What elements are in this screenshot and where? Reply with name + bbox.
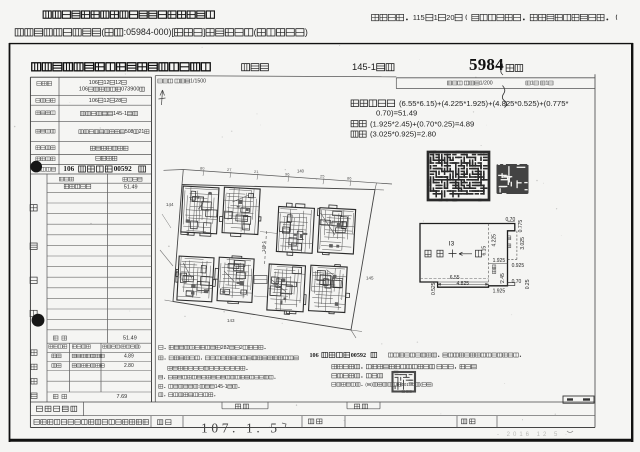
svg-text:4.825: 4.825 bbox=[457, 281, 470, 287]
svg-text:4.225: 4.225 bbox=[492, 234, 498, 247]
svg-text:20: 20 bbox=[446, 13, 454, 22]
svg-text:106: 106 bbox=[310, 353, 319, 359]
svg-text::05984-000)[: :05984-000)[ bbox=[124, 27, 175, 37]
svg-text:(3.025*0.925)=2.80: (3.025*0.925)=2.80 bbox=[370, 130, 436, 139]
svg-text:I3: I3 bbox=[449, 241, 455, 248]
svg-text:4.89: 4.89 bbox=[124, 353, 134, 359]
svg-text:00592: 00592 bbox=[114, 165, 132, 173]
svg-text:7.69: 7.69 bbox=[117, 394, 128, 400]
svg-text:1: 1 bbox=[434, 13, 438, 22]
svg-text:(: ( bbox=[101, 27, 104, 37]
svg-text:12: 12 bbox=[103, 80, 109, 86]
svg-text:51.49: 51.49 bbox=[123, 336, 137, 342]
svg-text:145-1: 145-1 bbox=[352, 61, 376, 72]
svg-text:21: 21 bbox=[254, 169, 259, 174]
svg-text:0.70: 0.70 bbox=[506, 217, 516, 223]
svg-text:(6.55*6.15)+(4.225*1.925)+(4.8: (6.55*6.15)+(4.225*1.925)+(4.825*0.525)+… bbox=[399, 99, 568, 108]
svg-text::: : bbox=[198, 384, 199, 390]
svg-text:(: ( bbox=[254, 27, 257, 37]
svg-text:106: 106 bbox=[63, 165, 74, 173]
svg-text:508: 508 bbox=[125, 129, 134, 135]
svg-text:5984: 5984 bbox=[469, 55, 504, 74]
svg-text:107. 1. 5: 107. 1. 5 bbox=[201, 421, 281, 436]
svg-text:115: 115 bbox=[413, 13, 425, 22]
svg-text:0.25: 0.25 bbox=[525, 279, 531, 289]
svg-text:27: 27 bbox=[227, 167, 232, 172]
svg-text:1: 1 bbox=[545, 80, 548, 86]
svg-text:0.525: 0.525 bbox=[431, 282, 437, 295]
svg-text:2: 2 bbox=[240, 345, 243, 351]
svg-text:25: 25 bbox=[320, 174, 325, 179]
svg-text:106: 106 bbox=[89, 80, 98, 86]
svg-text:6.15: 6.15 bbox=[482, 246, 488, 256]
svg-text:86: 86 bbox=[347, 176, 352, 181]
svg-text:282: 282 bbox=[221, 345, 230, 351]
svg-text:2.80: 2.80 bbox=[124, 363, 134, 369]
svg-text:00592: 00592 bbox=[351, 353, 366, 359]
svg-text:3.025: 3.025 bbox=[520, 237, 526, 250]
svg-text:1: 1 bbox=[531, 80, 534, 86]
svg-text:140: 140 bbox=[297, 169, 305, 174]
svg-text:1/1500: 1/1500 bbox=[190, 78, 206, 84]
svg-text:145-1: 145-1 bbox=[261, 240, 266, 252]
svg-text:): ) bbox=[305, 27, 308, 37]
svg-text:143: 143 bbox=[227, 318, 235, 323]
svg-text:80: 80 bbox=[200, 165, 205, 170]
svg-text:96: 96 bbox=[285, 171, 290, 176]
svg-text:]: ] bbox=[203, 27, 205, 37]
svg-text:0.70)=51.49: 0.70)=51.49 bbox=[376, 108, 417, 117]
svg-text:145-1: 145-1 bbox=[113, 111, 127, 117]
svg-text:106: 106 bbox=[89, 98, 98, 104]
svg-text:12: 12 bbox=[115, 80, 121, 86]
svg-text:0.70: 0.70 bbox=[512, 279, 522, 285]
svg-text:51.49: 51.49 bbox=[124, 184, 138, 190]
svg-text:106: 106 bbox=[79, 87, 88, 93]
svg-text:1/200: 1/200 bbox=[480, 80, 493, 86]
svg-text:28: 28 bbox=[115, 98, 121, 104]
svg-text:- 2016 12 5 ·: - 2016 12 5 · bbox=[497, 432, 570, 438]
svg-text:21: 21 bbox=[139, 129, 145, 135]
svg-text:0.775: 0.775 bbox=[518, 220, 524, 233]
svg-text:073900: 073900 bbox=[121, 87, 139, 93]
svg-text:12: 12 bbox=[103, 98, 109, 104]
svg-text:145-1: 145-1 bbox=[215, 384, 228, 390]
svg-text:(96): (96) bbox=[365, 382, 373, 387]
svg-text:1.925: 1.925 bbox=[493, 289, 506, 295]
svg-text:145: 145 bbox=[366, 276, 374, 281]
svg-text:0.925: 0.925 bbox=[512, 263, 525, 269]
svg-text:(1.925*2.45)+(0.70*0.25)=4.89: (1.925*2.45)+(0.70*0.25)=4.89 bbox=[370, 120, 474, 129]
svg-text:2.45: 2.45 bbox=[500, 273, 506, 283]
